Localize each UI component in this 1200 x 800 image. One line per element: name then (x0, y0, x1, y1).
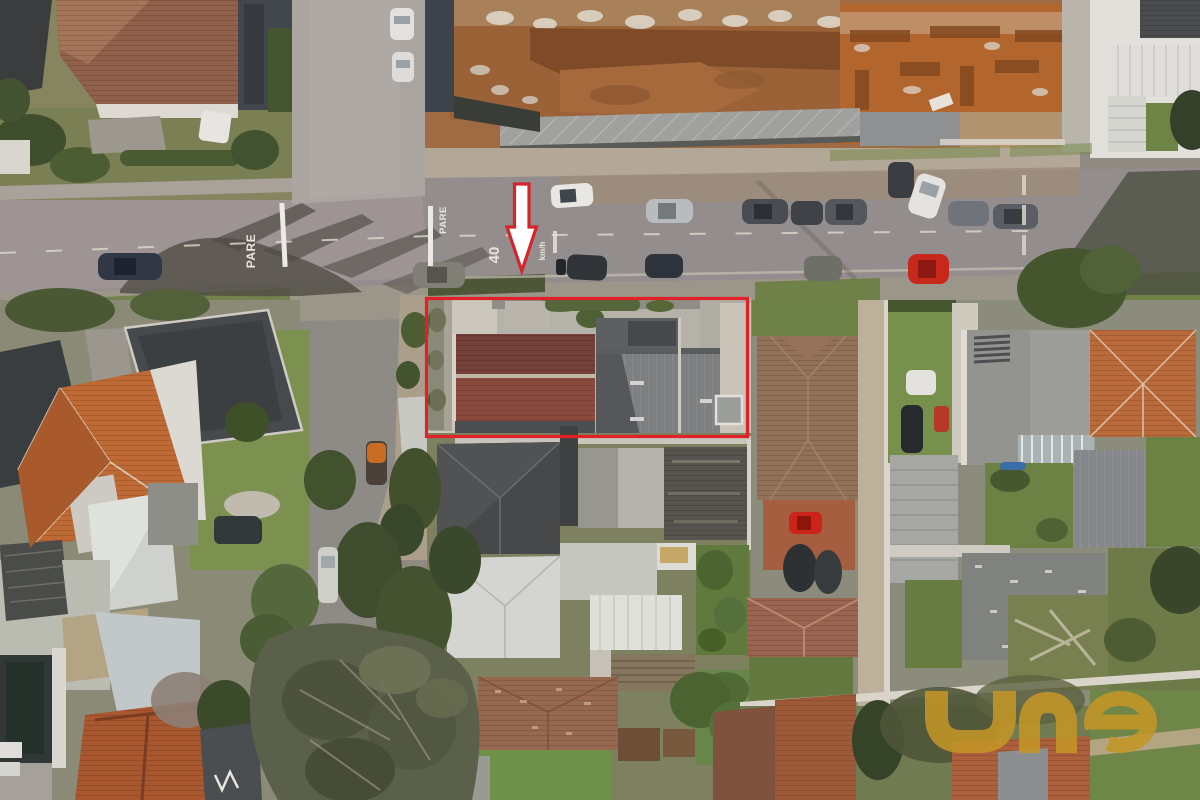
svg-text:km/h: km/h (538, 242, 547, 261)
svg-text:PARE: PARE (244, 234, 258, 268)
svg-text:40: 40 (486, 247, 503, 264)
svg-text:PARE: PARE (438, 206, 449, 234)
